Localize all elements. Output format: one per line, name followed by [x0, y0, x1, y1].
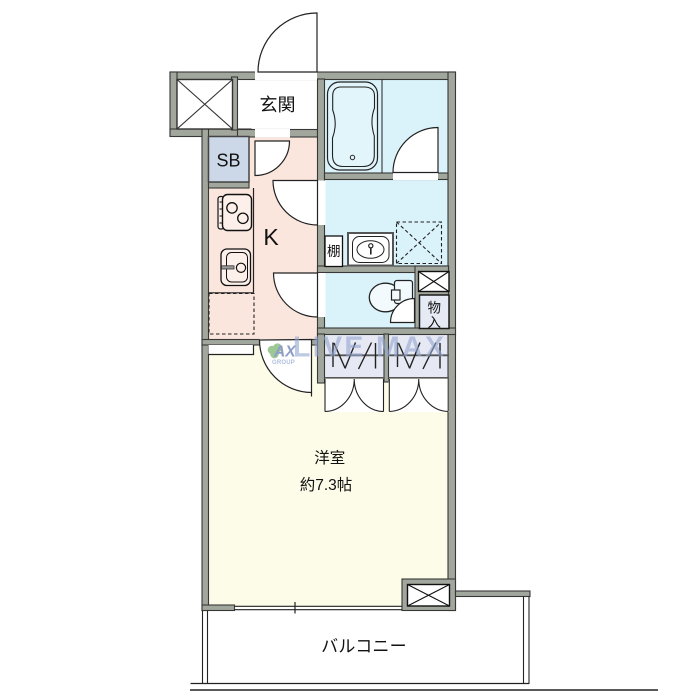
svg-text:洋室: 洋室	[314, 449, 345, 467]
svg-text:SB: SB	[216, 151, 240, 171]
svg-text:LIVE MAX: LIVE MAX	[293, 332, 444, 364]
svg-text:物: 物	[428, 301, 442, 316]
svg-text:約7.3帖: 約7.3帖	[300, 476, 353, 494]
svg-text:バルコニー: バルコニー	[321, 637, 407, 656]
svg-text:玄関: 玄関	[260, 95, 296, 115]
svg-text:GROUP: GROUP	[272, 360, 295, 366]
svg-text:入: 入	[428, 315, 442, 330]
svg-text:K: K	[263, 224, 279, 250]
svg-text:棚: 棚	[327, 244, 341, 259]
